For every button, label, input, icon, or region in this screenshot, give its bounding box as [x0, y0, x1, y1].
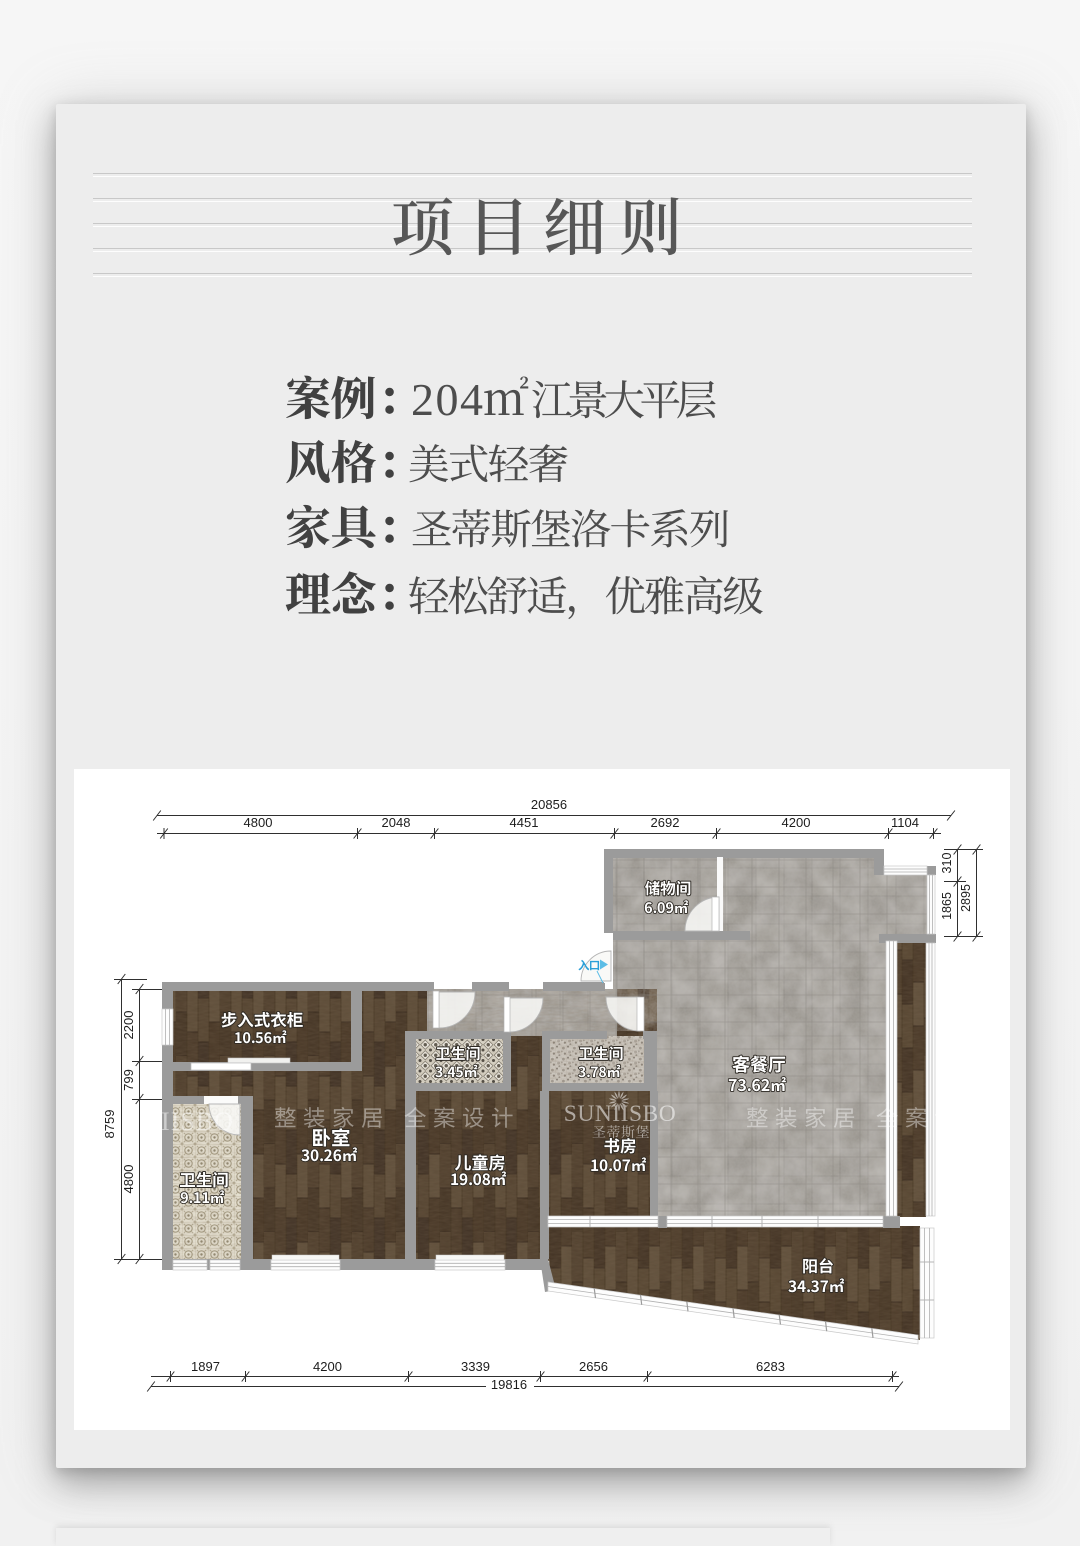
svg-text:1897: 1897	[191, 1359, 220, 1374]
svg-text:2656: 2656	[579, 1359, 608, 1374]
svg-text:4451: 4451	[510, 815, 539, 830]
svg-text:3339: 3339	[461, 1359, 490, 1374]
svg-text:310: 310	[940, 853, 954, 874]
svg-text:19816: 19816	[491, 1377, 527, 1392]
svg-text:6283: 6283	[756, 1359, 785, 1374]
svg-text:2895: 2895	[959, 884, 973, 912]
svg-text:2200: 2200	[121, 1011, 136, 1040]
svg-text:4800: 4800	[244, 815, 273, 830]
svg-text:SUNIISBO: SUNIISBO	[106, 1107, 234, 1136]
svg-text:20856: 20856	[531, 797, 567, 812]
svg-text:4200: 4200	[313, 1359, 342, 1374]
svg-text:799: 799	[121, 1069, 136, 1091]
svg-text:204: 204	[411, 374, 485, 425]
svg-text:4800: 4800	[121, 1165, 136, 1194]
svg-text:2692: 2692	[651, 815, 680, 830]
svg-text:4200: 4200	[782, 815, 811, 830]
svg-text:SUNIISBO: SUNIISBO	[564, 1101, 676, 1127]
svg-text:8759: 8759	[102, 1110, 117, 1139]
svg-text:1865: 1865	[940, 892, 954, 920]
svg-text:1104: 1104	[891, 815, 919, 830]
svg-text:2048: 2048	[382, 815, 411, 830]
